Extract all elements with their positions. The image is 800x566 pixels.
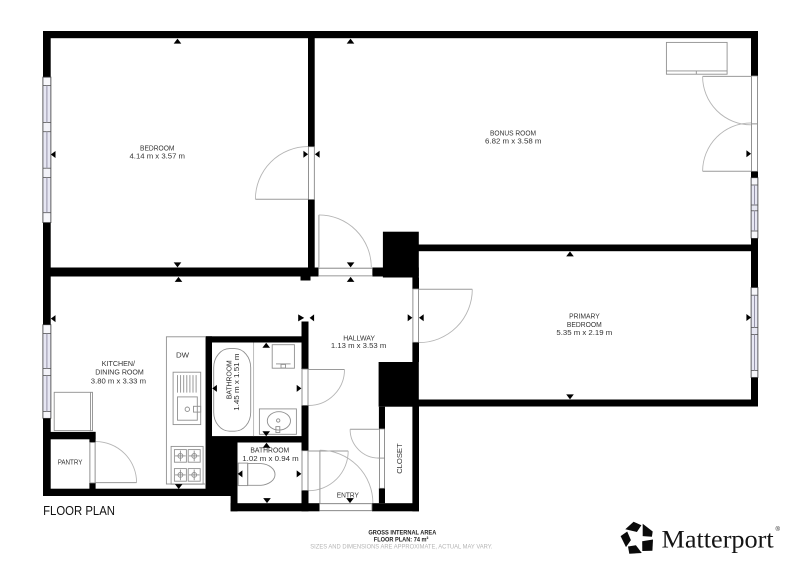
svg-text:GROSS INTERNAL AREA: GROSS INTERNAL AREA [368,530,436,537]
svg-text:4.14 m x 3.57 m: 4.14 m x 3.57 m [130,152,186,161]
svg-text:3.80 m x 3.33 m: 3.80 m x 3.33 m [91,376,146,385]
svg-text:6.82 m x 3.58 m: 6.82 m x 3.58 m [485,137,542,146]
svg-text:DINING ROOM: DINING ROOM [95,368,144,377]
svg-text:1.02 m x 0.94 m: 1.02 m x 0.94 m [242,454,298,463]
svg-text:KITCHEN/: KITCHEN/ [102,359,135,368]
svg-text:1.45 m x 1.51 m: 1.45 m x 1.51 m [232,354,241,411]
svg-text:®: ® [776,526,781,533]
svg-text:1.13 m x 3.53 m: 1.13 m x 3.53 m [331,341,386,350]
svg-text:PANTRY: PANTRY [58,457,83,466]
svg-text:SIZES AND DIMENSIONS ARE APPRO: SIZES AND DIMENSIONS ARE APPROXIMATE, AC… [310,543,492,550]
svg-text:5.35 m x 2.19 m: 5.35 m x 2.19 m [556,328,612,337]
svg-text:CLOSET: CLOSET [395,443,404,474]
svg-text:Matterport: Matterport [662,527,774,554]
svg-text:FLOOR PLAN: FLOOR PLAN [43,503,115,518]
svg-text:DW: DW [176,350,189,359]
